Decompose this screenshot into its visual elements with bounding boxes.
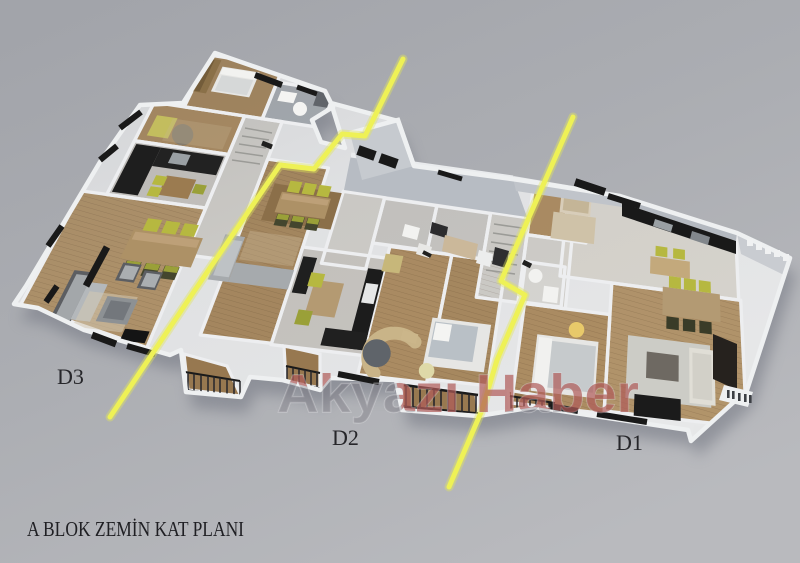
- svg-text:A BLOK ZEMİN KAT PLANI: A BLOK ZEMİN KAT PLANI: [27, 517, 244, 541]
- svg-text:D1: D1: [616, 430, 643, 455]
- svg-text:D3: D3: [57, 364, 84, 389]
- svg-text:D2: D2: [332, 425, 359, 450]
